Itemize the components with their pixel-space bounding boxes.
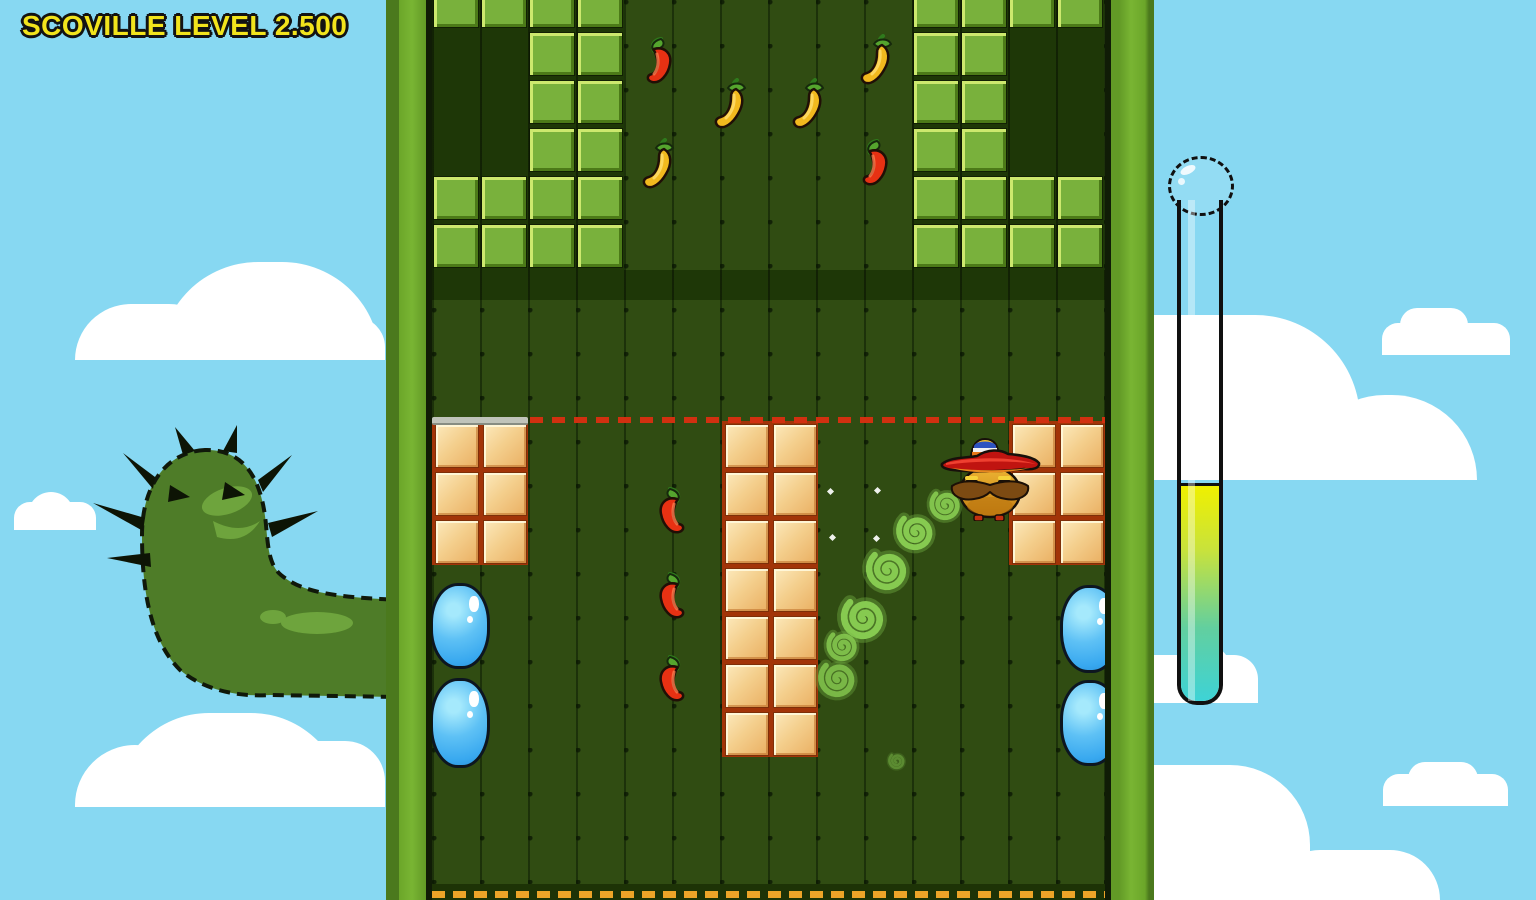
green-brick xyxy=(914,177,958,219)
green-brick xyxy=(914,33,958,75)
green-brick xyxy=(1010,177,1054,219)
green-brick xyxy=(578,0,622,27)
water-droplet xyxy=(1060,585,1105,673)
tan-brick xyxy=(725,568,769,612)
green-brick xyxy=(1058,225,1102,267)
tan-brick xyxy=(725,664,769,708)
green-brick xyxy=(962,225,1006,267)
tan-brick xyxy=(483,472,527,516)
cloud xyxy=(1382,308,1510,355)
green-brick xyxy=(914,81,958,123)
pepper-red-icon xyxy=(640,36,678,91)
green-brick xyxy=(578,177,622,219)
green-brick xyxy=(578,225,622,267)
scoville-level-value: 2.500 xyxy=(275,10,348,41)
tan-brick xyxy=(725,616,769,660)
tan-brick xyxy=(1060,424,1104,468)
pepper-red-icon xyxy=(653,654,691,709)
cloud xyxy=(75,713,385,807)
green-brick xyxy=(578,33,622,75)
tan-brick xyxy=(483,424,527,468)
water-droplet xyxy=(432,583,490,669)
green-brick xyxy=(482,0,526,27)
tan-brick xyxy=(725,424,769,468)
steel-bar xyxy=(432,417,528,425)
green-brick xyxy=(530,81,574,123)
tan-brick xyxy=(725,712,769,756)
green-brick xyxy=(914,0,958,27)
scoville-level-label: SCOVILLE LEVEL xyxy=(22,10,267,41)
tan-brick xyxy=(1060,472,1104,516)
cloud xyxy=(75,262,385,360)
bottom-dotted-line xyxy=(432,891,1105,898)
green-brick xyxy=(530,177,574,219)
cactus xyxy=(55,425,400,705)
sparkle-icon xyxy=(829,534,836,541)
tan-brick xyxy=(773,712,817,756)
pepper-red-icon xyxy=(856,138,894,193)
green-brick xyxy=(1010,0,1054,27)
green-brick xyxy=(962,81,1006,123)
green-brick xyxy=(914,225,958,267)
pepper-yellow-icon xyxy=(788,78,828,139)
water-droplet xyxy=(432,678,490,768)
game-screen: SCOVILLE LEVEL 2.500 xyxy=(0,0,1536,900)
thermometer-glass-shine xyxy=(1188,200,1195,701)
green-brick xyxy=(530,0,574,27)
field-frame-left xyxy=(386,0,432,900)
tan-brick xyxy=(773,520,817,564)
character-foot xyxy=(995,515,1004,521)
thermometer-fill xyxy=(1181,483,1219,701)
tan-brick xyxy=(773,424,817,468)
tan-brick xyxy=(435,520,479,564)
green-brick xyxy=(962,177,1006,219)
ignition-dotted-line xyxy=(530,417,1105,423)
tan-brick xyxy=(1060,520,1104,564)
green-brick xyxy=(434,225,478,267)
sparkle-icon xyxy=(827,488,834,495)
green-brick xyxy=(1058,0,1102,27)
green-brick xyxy=(530,225,574,267)
sparkle-icon xyxy=(874,487,881,494)
green-brick xyxy=(434,0,478,27)
green-brick xyxy=(962,0,1006,27)
green-brick xyxy=(530,33,574,75)
green-brick xyxy=(962,129,1006,171)
sparkle-icon xyxy=(873,535,880,542)
scoville-hud: SCOVILLE LEVEL 2.500 xyxy=(22,10,347,42)
green-brick xyxy=(1010,225,1054,267)
tan-brick xyxy=(725,520,769,564)
tan-brick xyxy=(1012,520,1056,564)
green-brick xyxy=(434,177,478,219)
player-character[interactable] xyxy=(938,436,1043,521)
green-brick xyxy=(578,129,622,171)
trail-spiral-icon xyxy=(861,543,915,597)
pepper-yellow-icon xyxy=(856,34,896,95)
green-brick xyxy=(530,129,574,171)
sombrero-brim xyxy=(942,450,1039,472)
trail-spiral-icon xyxy=(882,746,912,776)
green-brick xyxy=(1058,177,1102,219)
pepper-yellow-icon xyxy=(638,138,678,199)
tan-brick xyxy=(773,664,817,708)
thermometer-tube xyxy=(1177,200,1223,705)
tan-brick xyxy=(773,616,817,660)
cloud xyxy=(1150,765,1430,900)
tan-brick xyxy=(773,472,817,516)
pepper-red-icon xyxy=(653,486,691,541)
green-brick xyxy=(482,225,526,267)
green-brick xyxy=(578,81,622,123)
character-foot xyxy=(974,515,983,521)
field-divider-band xyxy=(432,270,1105,300)
tan-brick xyxy=(483,520,527,564)
tan-brick xyxy=(435,424,479,468)
tan-brick xyxy=(435,472,479,516)
tan-brick xyxy=(725,472,769,516)
field-frame-right xyxy=(1105,0,1154,900)
pepper-red-icon xyxy=(653,571,691,626)
green-brick xyxy=(482,177,526,219)
green-brick xyxy=(962,33,1006,75)
tan-brick xyxy=(773,568,817,612)
water-droplet xyxy=(1060,680,1105,766)
pepper-yellow-icon xyxy=(710,78,750,139)
green-brick xyxy=(914,129,958,171)
trail-spiral-icon xyxy=(813,654,863,704)
playfield[interactable] xyxy=(432,0,1105,900)
